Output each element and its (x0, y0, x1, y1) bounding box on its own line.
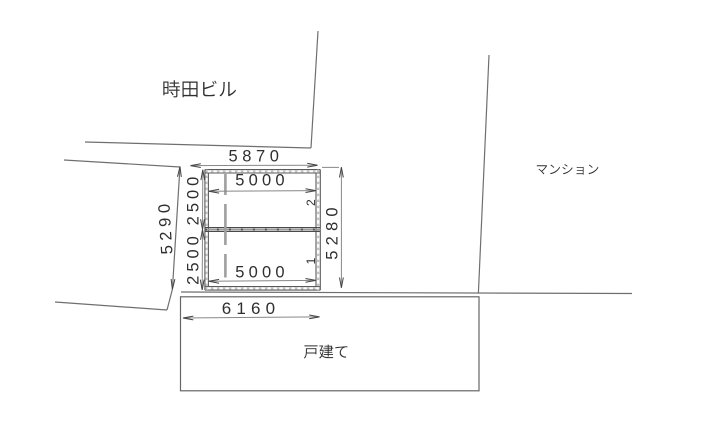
svg-text:1: 1 (304, 257, 318, 264)
svg-text:2500: 2500 (185, 232, 203, 285)
svg-text:5280: 5280 (324, 202, 342, 260)
svg-text:5870: 5870 (228, 148, 283, 166)
svg-text:2: 2 (304, 199, 318, 206)
svg-text:5000: 5000 (235, 263, 289, 281)
svg-text:2500: 2500 (185, 173, 203, 226)
svg-text:5290: 5290 (155, 199, 176, 255)
svg-text:6160: 6160 (222, 299, 281, 318)
svg-text:5000: 5000 (235, 171, 289, 189)
